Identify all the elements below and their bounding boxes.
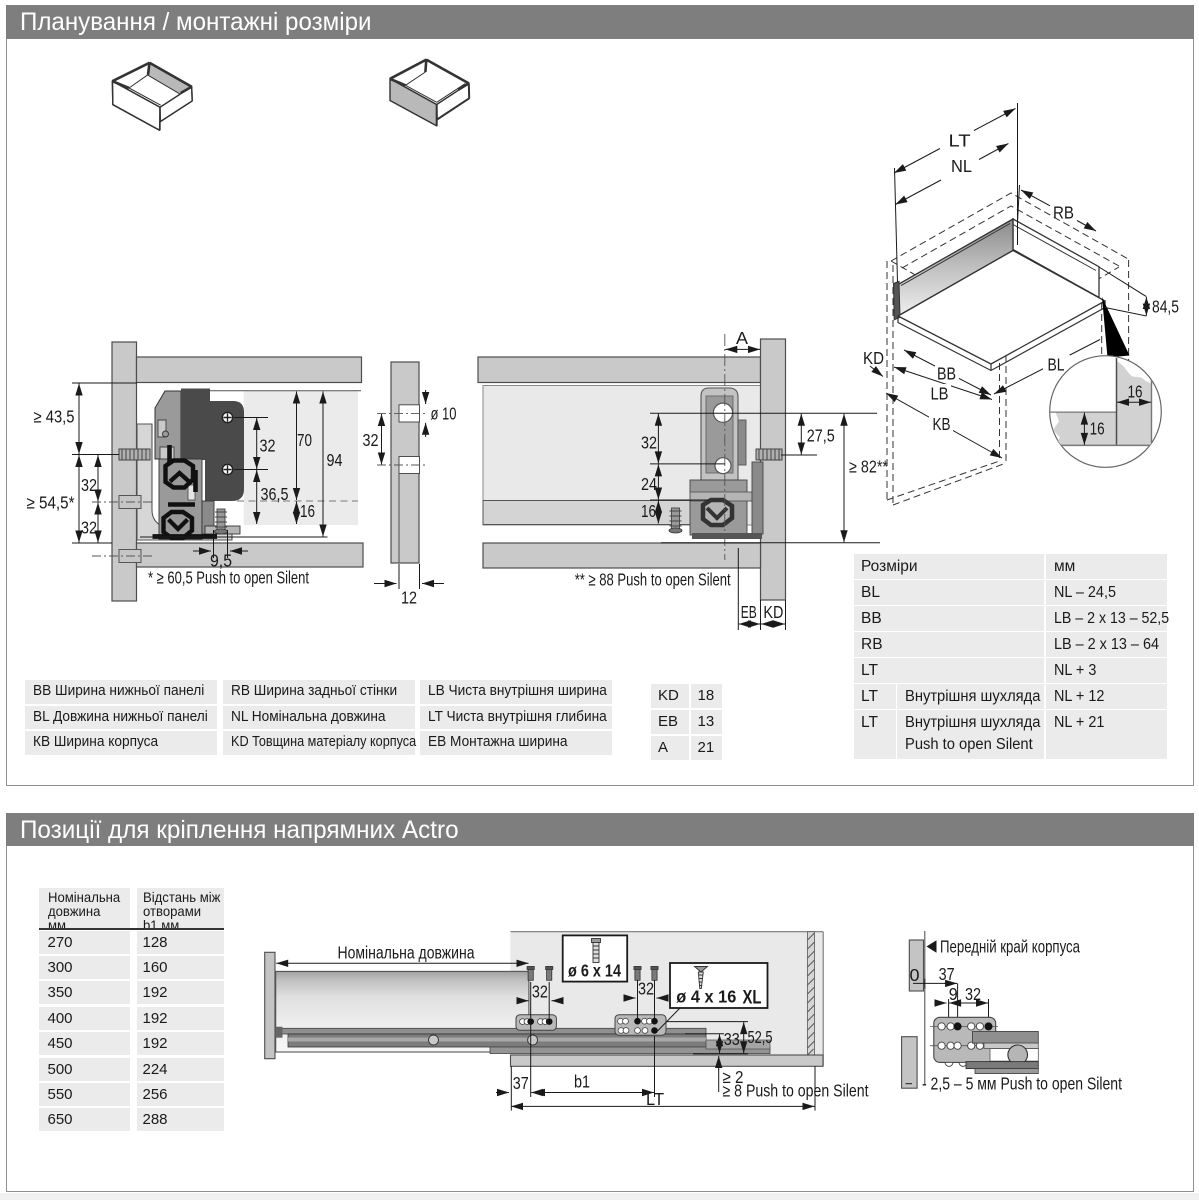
svg-text:9: 9 — [949, 984, 958, 1004]
svg-text:32: 32 — [638, 979, 654, 999]
svg-text:32: 32 — [641, 432, 657, 452]
svg-text:BL: BL — [1048, 355, 1065, 375]
svg-text:A: A — [736, 328, 748, 348]
svg-text:* ≥ 60,5 Push to open Silent: * ≥ 60,5 Push to open Silent — [148, 568, 309, 588]
svg-text:LT: LT — [646, 1089, 664, 1109]
svg-text:≥ 43,5: ≥ 43,5 — [34, 407, 75, 427]
svg-text:37: 37 — [939, 964, 955, 984]
svg-text:94: 94 — [327, 450, 343, 470]
svg-text:KB: KB — [933, 414, 951, 434]
svg-text:16: 16 — [641, 501, 656, 521]
svg-text:≥ 82**: ≥ 82** — [849, 457, 888, 477]
svg-text:32: 32 — [260, 436, 276, 456]
svg-text:KD: KD — [863, 348, 884, 368]
svg-text:16: 16 — [300, 501, 315, 521]
svg-text:32: 32 — [363, 430, 379, 450]
svg-text:NL: NL — [951, 156, 972, 176]
svg-text:≥ 54,5*: ≥ 54,5* — [27, 493, 75, 513]
svg-text:0: 0 — [910, 965, 920, 985]
svg-text:ø 10: ø 10 — [431, 404, 457, 424]
svg-text:LT: LT — [949, 131, 971, 151]
svg-text:32: 32 — [965, 984, 981, 1004]
svg-text:Передній край корпуса: Передній край корпуса — [940, 937, 1080, 957]
svg-text:84,5: 84,5 — [1152, 297, 1179, 317]
svg-text:XL: XL — [743, 987, 762, 1009]
svg-text:- 2,5 – 5 мм Push to open Sile: - 2,5 – 5 мм Push to open Silent — [922, 1074, 1122, 1094]
svg-text:ø 4 x 16: ø 4 x 16 — [676, 987, 736, 1007]
svg-text:≥ 8 Push to open Silent: ≥ 8 Push to open Silent — [723, 1080, 869, 1100]
svg-text:24: 24 — [641, 474, 657, 494]
svg-text:12: 12 — [401, 588, 417, 608]
svg-text:16: 16 — [1090, 419, 1105, 439]
svg-text:32: 32 — [81, 475, 97, 495]
svg-text:70: 70 — [297, 430, 312, 450]
svg-text:RB: RB — [1053, 203, 1074, 223]
svg-text:32: 32 — [81, 518, 97, 538]
svg-text:27,5: 27,5 — [807, 426, 835, 446]
svg-text:32: 32 — [532, 982, 548, 1002]
svg-text:** ≥ 88 Push to open Silent: ** ≥ 88 Push to open Silent — [575, 570, 731, 590]
svg-text:LB: LB — [931, 384, 949, 404]
svg-text:Номінальна довжина: Номінальна довжина — [338, 943, 475, 963]
svg-text:EB: EB — [741, 602, 757, 622]
svg-text:BB: BB — [937, 364, 956, 384]
svg-text:52,5: 52,5 — [748, 1027, 773, 1047]
svg-text:36,5: 36,5 — [261, 484, 289, 504]
svg-text:KD: KD — [763, 602, 783, 622]
svg-text:b1: b1 — [574, 1072, 590, 1092]
svg-text:16: 16 — [1128, 382, 1143, 402]
svg-text:33: 33 — [724, 1029, 740, 1049]
svg-text:ø 6 x 14: ø 6 x 14 — [568, 961, 621, 981]
svg-text:37: 37 — [513, 1073, 529, 1093]
